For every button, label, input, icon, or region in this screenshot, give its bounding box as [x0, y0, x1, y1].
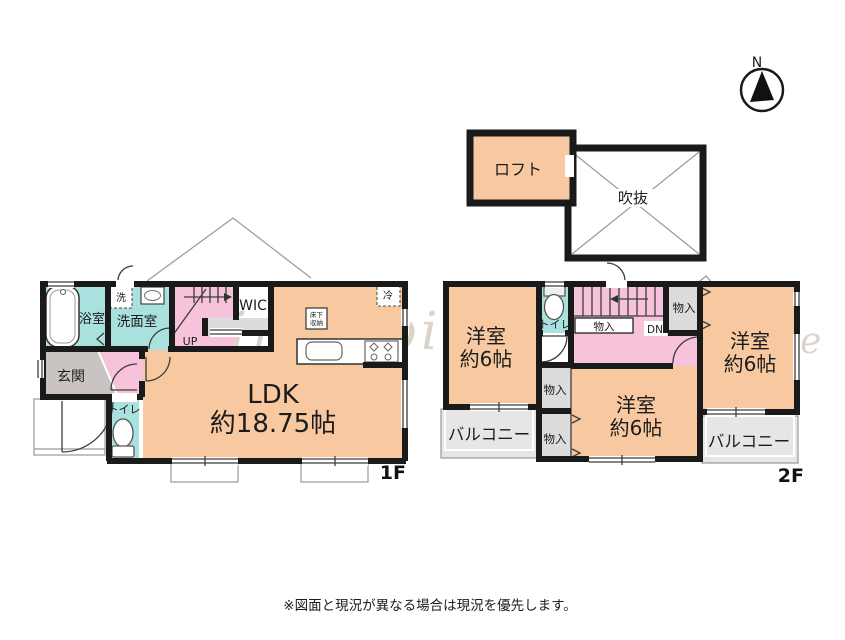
underfloor-label-2: 収納	[310, 318, 323, 327]
floorplan-canvas: ロフト 吹抜 N Clair Supithy Real estate	[0, 0, 845, 640]
toilet-icon-1f	[112, 419, 134, 457]
west2-label: 洋室	[616, 393, 656, 417]
stairs-up-label: UP	[183, 335, 198, 348]
vanity-sink-icon	[141, 287, 164, 304]
washer-label: 洗	[116, 292, 126, 304]
toilet-icon-2f	[544, 287, 565, 320]
west3-label: 洋室	[730, 329, 770, 353]
balcony-right-label: バルコニー	[708, 432, 790, 451]
terrace-left	[171, 465, 238, 482]
floor2-plan: 洋室 約6帖 トイレ 物入 DN 物入 物入 物入 洋室 約6帖 洋室 約6帖 …	[441, 263, 804, 487]
bathtub-icon	[46, 286, 79, 347]
loft-plan: ロフト 吹抜	[470, 133, 703, 258]
compass-north-label: N	[752, 55, 762, 71]
porch-outline	[34, 399, 105, 455]
closet2-label: 物入	[544, 432, 567, 446]
roof-outline-1f	[147, 218, 311, 281]
west1-label: 洋室	[466, 324, 506, 348]
balcony-left-label: バルコニー	[448, 425, 530, 444]
closet1-label: 物入	[544, 383, 567, 397]
fridge-label: 冷	[383, 289, 393, 302]
bath-label: 浴室	[79, 311, 105, 327]
stairs-dn-label: DN	[647, 324, 663, 336]
void-label: 吹抜	[618, 189, 648, 207]
terrace-right	[301, 465, 368, 482]
underfloor-label-1: 床下	[310, 310, 324, 319]
entrance-label: 玄関	[57, 368, 85, 385]
loft-label: ロフト	[494, 160, 542, 179]
washroom-label: 洗面室	[117, 313, 158, 330]
floor1-plan: 浴室 洗 洗面室 WIC UP 玄関 トイレ LDK 約18.75帖 床下 収納…	[34, 218, 410, 484]
ldk-label: LDK	[247, 380, 300, 410]
toilet-label-1f: トイレ	[108, 403, 141, 416]
west1-size: 約6帖	[460, 347, 513, 371]
closet4-label: 物入	[594, 320, 615, 333]
floor1-tag: 1F	[380, 462, 406, 484]
compass: N	[741, 55, 783, 111]
wic-label: WIC	[239, 298, 267, 314]
closet3-label: 物入	[673, 301, 696, 315]
loft-opening	[565, 155, 574, 177]
floor2-tag: 2F	[778, 465, 804, 487]
toilet-label-2f: トイレ	[539, 318, 572, 331]
west3-size: 約6帖	[724, 352, 777, 376]
disclaimer-text: ※図面と現況が異なる場合は現況を優先します。	[283, 598, 576, 614]
ldk-size-label: 約18.75帖	[210, 409, 336, 439]
west2-size: 約6帖	[610, 416, 663, 440]
kitchen-counter-icon	[297, 339, 405, 364]
